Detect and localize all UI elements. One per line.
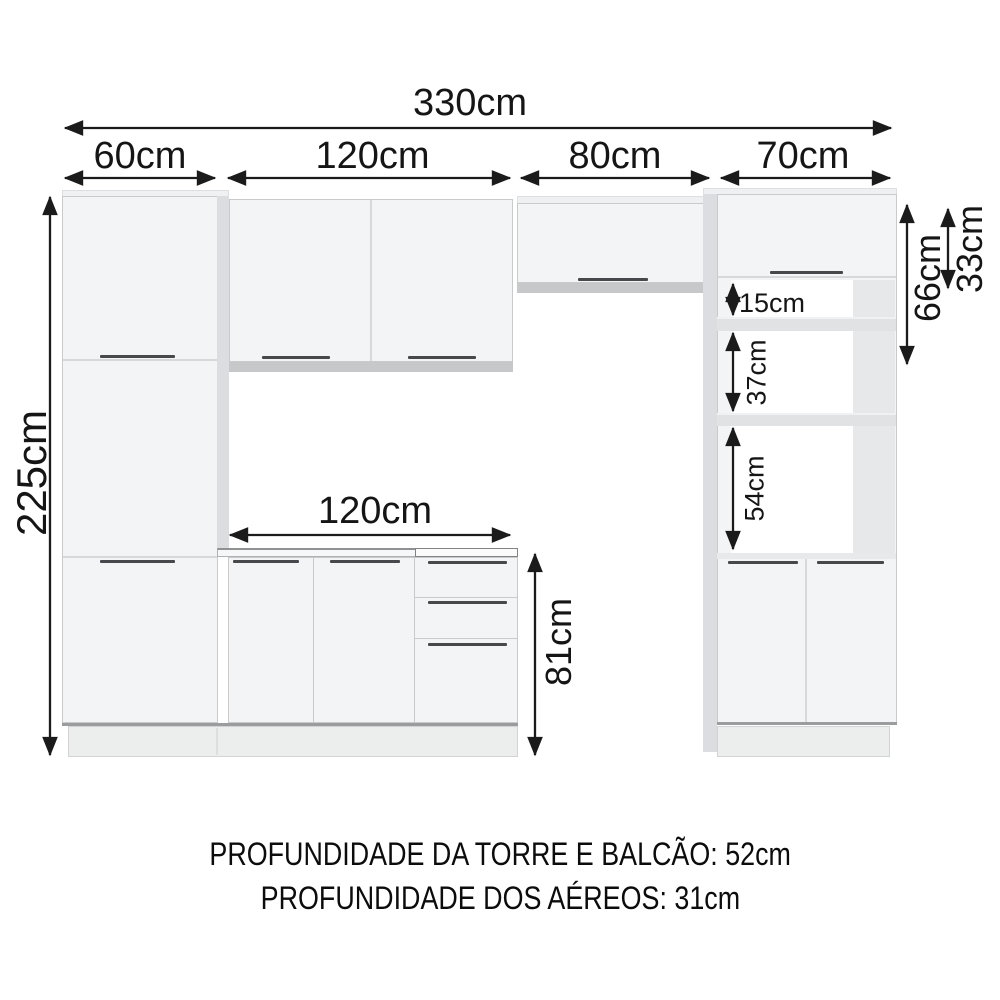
- dim-label-120-counter: 120cm: [300, 492, 450, 530]
- base-drawer-2-handle: [428, 601, 507, 604]
- wall-cabinet-120-handle-left: [262, 356, 330, 359]
- base-door-1: [228, 557, 314, 723]
- right-tower-top-door-gap: [718, 276, 896, 278]
- left-tower-door-gap-1: [63, 359, 217, 361]
- right-tower-side-face: [703, 194, 717, 752]
- niche-15cm-side-panel: [853, 280, 895, 317]
- left-tower-door3-handle: [100, 560, 175, 563]
- right-tower-plinth: [717, 726, 890, 757]
- depth-note-tower-counter: PROFUNDIDADE DA TORRE E BALCÃO: 52cm: [209, 836, 791, 873]
- kitchen-dimension-diagram: 330cm 60cm 120cm 80cm 70cm 225cm 120cm 8…: [0, 0, 1000, 1000]
- footer-depth-notes: PROFUNDIDADE DA TORRE E BALCÃO: 52cm: [0, 836, 1000, 873]
- left-tower-front: [62, 196, 218, 723]
- dim-label-120-top: 120cm: [300, 137, 445, 175]
- wall-cabinet-120-door-gap: [370, 200, 372, 361]
- depth-note-wall-cabinets: PROFUNDIDADE DOS AÉREOS: 31cm: [260, 880, 739, 917]
- dim-label-225: 225cm: [11, 393, 53, 553]
- right-tower-bottom-door-gap: [805, 559, 807, 722]
- footer-depth-notes-2: PROFUNDIDADE DOS AÉREOS: 31cm: [0, 880, 1000, 917]
- countertop-drawer-section: [415, 548, 518, 557]
- wall-cabinet-80-bottom-strip: [517, 283, 707, 293]
- wall-cabinet-120-bottom-strip: [229, 362, 513, 372]
- right-tower-top-door-handle: [770, 271, 843, 274]
- base-run-plinth: [68, 726, 518, 757]
- dim-label-60: 60cm: [65, 137, 215, 175]
- niche-37cm-side-panel: [853, 331, 895, 413]
- dim-label-330: 330cm: [370, 84, 570, 122]
- dim-label-81: 81cm: [541, 572, 577, 712]
- dim-label-54: 54cm: [742, 429, 769, 549]
- base-door-1-handle: [233, 560, 299, 563]
- base-door-2: [313, 557, 415, 723]
- right-tower-bottom-handle-right: [817, 561, 884, 564]
- right-tower-bottom-handle-left: [728, 561, 798, 564]
- dim-label-80: 80cm: [545, 137, 685, 175]
- base-door-2-handle: [330, 560, 400, 563]
- dim-label-33: 33cm: [952, 179, 988, 319]
- plinth-seam: [216, 728, 218, 755]
- wall-cabinet-80-handle: [578, 278, 648, 281]
- base-drawer-3: [414, 638, 518, 723]
- dim-label-37: 37cm: [744, 313, 771, 433]
- wall-cabinet-80-front: [517, 203, 707, 283]
- base-drawer-3-handle: [428, 643, 507, 646]
- left-tower-side-face: [217, 196, 229, 557]
- left-tower-door-gap-2: [63, 556, 217, 558]
- left-tower-door1-handle: [100, 355, 175, 358]
- wall-cabinet-120-handle-right: [408, 356, 476, 359]
- dim-label-66: 66cm: [910, 208, 946, 348]
- right-tower-base-shadow: [717, 722, 897, 725]
- niche-54cm-side-panel: [853, 426, 895, 553]
- base-drawer-1-handle: [428, 561, 507, 564]
- dim-label-70: 70cm: [733, 137, 873, 175]
